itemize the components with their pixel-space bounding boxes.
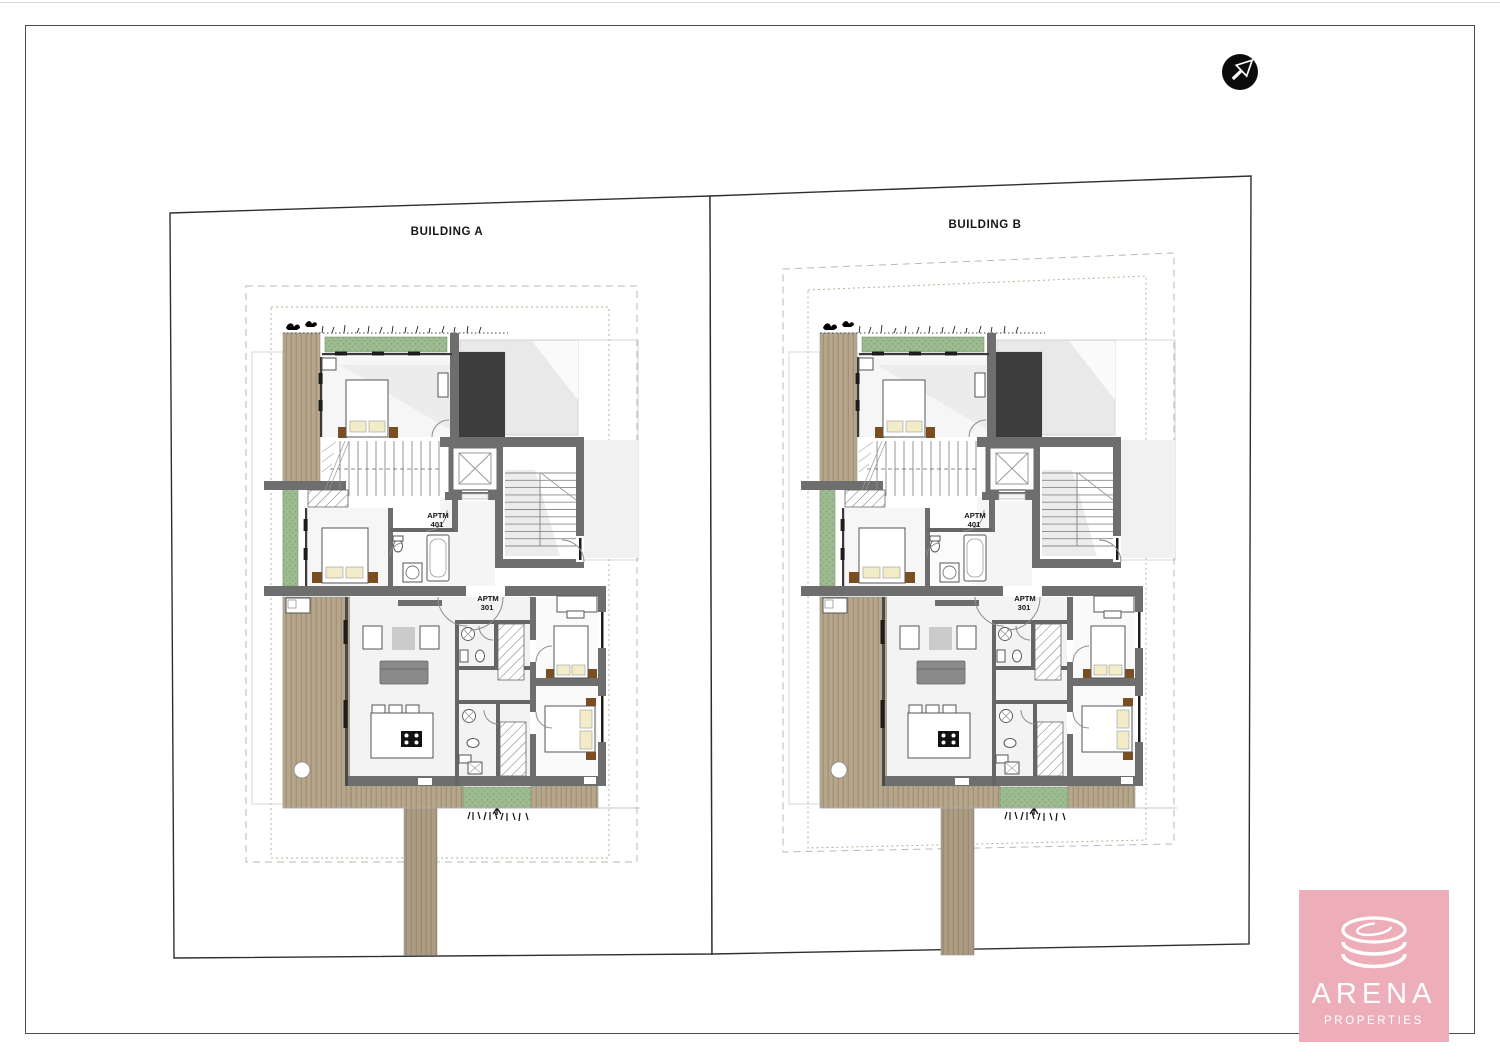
- arena-properties-logo: ARENA PROPERTIES: [1299, 890, 1449, 1042]
- north-arrow-icon: [1217, 49, 1263, 95]
- plan-sheet: APTM 401 APTM 301 BUILDING A BUILDING B: [0, 0, 1500, 1061]
- building-b-title: BUILDING B: [875, 219, 1095, 231]
- site-drawing: APTM 401 APTM 301: [0, 0, 1500, 1061]
- logo-subtitle-text: PROPERTIES: [1324, 1015, 1424, 1027]
- building-a-title: BUILDING A: [337, 226, 557, 238]
- logo-brand-text: ARENA: [1312, 978, 1437, 1010]
